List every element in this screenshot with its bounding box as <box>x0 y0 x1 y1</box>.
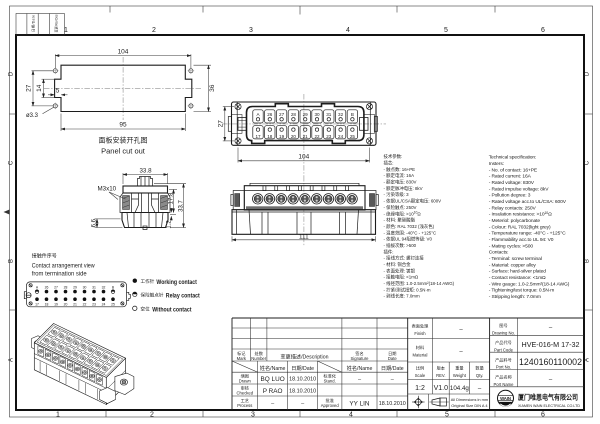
svg-text:Part Code: Part Code <box>494 347 514 352</box>
svg-text:2: 2 <box>150 412 154 419</box>
svg-text:32: 32 <box>102 285 106 289</box>
svg-text:- Insulation resistance: >101: - Insulation resistance: >1010Ω <box>489 211 552 218</box>
svg-text:1.2: 1.2 <box>167 220 173 229</box>
svg-text:Contacts:: Contacts: <box>489 250 509 256</box>
svg-text:23: 23 <box>326 134 332 139</box>
svg-text:20: 20 <box>291 134 297 139</box>
svg-text:6: 6 <box>541 412 545 419</box>
svg-text:- 污染等级: 3: - 污染等级: 3 <box>384 191 410 198</box>
svg-text:6.6: 6.6 <box>92 218 98 227</box>
svg-text:- Rated current: 16A: - Rated current: 16A <box>489 174 532 180</box>
svg-text:1:2: 1:2 <box>415 385 425 392</box>
svg-text:插芯:: 插芯: <box>384 160 394 167</box>
svg-text:日期/Date: 日期/Date <box>291 365 314 372</box>
svg-text:Drawn: Drawn <box>239 379 252 384</box>
svg-text:姓名/Name: 姓名/Name <box>260 364 286 372</box>
svg-text:4: 4 <box>349 412 353 419</box>
svg-text:BQ LUO: BQ LUO <box>261 376 285 383</box>
svg-text:18.10.2010: 18.10.2010 <box>379 401 406 407</box>
svg-text:- Contact resistance: <1mΩ: - Contact resistance: <1mΩ <box>489 275 546 281</box>
svg-text:29: 29 <box>303 112 309 117</box>
svg-text:- Flammability acc.to UL 94:: - Flammability acc.to UL 94: V0 <box>489 237 554 243</box>
svg-text:22: 22 <box>83 302 87 306</box>
svg-text:版本: 版本 <box>437 365 446 372</box>
svg-text:- 拧紧/测试扭矩: 0.5N·m: - 拧紧/测试扭矩: 0.5N·m <box>384 286 431 293</box>
svg-text:33.7: 33.7 <box>179 200 185 212</box>
svg-text:Panel cut out: Panel cut out <box>101 147 146 156</box>
svg-text:D: D <box>585 71 591 76</box>
svg-text:Insters:: Insters: <box>489 161 504 167</box>
svg-text:- 额定电压: 830V: - 额定电压: 830V <box>384 179 417 186</box>
svg-text:日期/Date: 日期/Date <box>381 365 404 372</box>
svg-text:WAIN: WAIN <box>500 396 511 401</box>
svg-text:1: 1 <box>64 27 68 34</box>
svg-text:日期/Date: 日期/Date <box>31 15 36 32</box>
svg-text:- 保险触点: 250V: - 保险触点: 250V <box>384 204 417 211</box>
svg-text:B: B <box>9 259 15 263</box>
svg-text:Mark: Mark <box>237 356 247 361</box>
svg-text:- 线径范围: 1.0-2.5mm²(18-14 AWG): - 线径范围: 1.0-2.5mm²(18-14 AWG) <box>384 280 455 287</box>
svg-text:ø3.3: ø3.3 <box>26 113 39 119</box>
svg-text:技术参数:: 技术参数: <box>384 153 403 160</box>
svg-text:Material: Material <box>413 353 428 358</box>
svg-text:Without contact: Without contact <box>152 307 191 314</box>
svg-text:REV.: REV. <box>436 373 445 378</box>
svg-text:Date: Date <box>388 356 398 361</box>
svg-text:5: 5 <box>444 27 448 34</box>
svg-text:- Surface: hard-silver plated: - Surface: hard-silver plated <box>489 269 547 275</box>
svg-text:28: 28 <box>64 285 68 289</box>
svg-text:Port Name: Port Name <box>493 382 514 387</box>
svg-text:Checked: Checked <box>237 391 254 396</box>
svg-text:Number: Number <box>251 356 266 361</box>
svg-text:比例: 比例 <box>416 365 424 372</box>
svg-text:32: 32 <box>338 112 344 117</box>
svg-text:C: C <box>9 160 15 165</box>
svg-text:3: 3 <box>249 27 253 34</box>
svg-text:19: 19 <box>54 302 58 306</box>
svg-text:30: 30 <box>83 285 87 289</box>
svg-text:- 材料: 聚碳酸酯: - 材料: 聚碳酸酯 <box>384 217 416 224</box>
svg-text:- Rated impulse voltage: 8kV: - Rated impulse voltage: 8kV <box>489 186 550 192</box>
svg-text:- 剥线长度: 7.0mm: - 剥线长度: 7.0mm <box>384 293 420 300</box>
svg-text:Qty.: Qty. <box>476 373 483 378</box>
svg-text:17.8: 17.8 <box>169 192 175 204</box>
svg-text:- 依据UL/CSA额定电压: 600V: - 依据UL/CSA额定电压: 600V <box>384 198 442 205</box>
svg-text:Process: Process <box>237 403 252 408</box>
svg-text:3: 3 <box>251 412 255 419</box>
svg-text:Drawing No.: Drawing No. <box>492 330 515 335</box>
svg-text:- Stripping length: 7.0mm: - Stripping length: 7.0mm <box>489 294 541 300</box>
svg-text:19: 19 <box>279 134 285 139</box>
svg-text:Technical specification:: Technical specification: <box>489 155 537 161</box>
svg-text:变更 Rev Des: 变更 Rev Des <box>54 14 59 32</box>
svg-text:产品名称: 产品名称 <box>495 374 512 381</box>
svg-text:A: A <box>585 358 591 362</box>
svg-text:21: 21 <box>303 134 309 139</box>
svg-text:插件:: 插件: <box>384 248 394 255</box>
svg-text:- 接线方式: 螺钉连接: - 接线方式: 螺钉连接 <box>384 255 425 262</box>
svg-text:All Dimensions in mm: All Dimensions in mm <box>451 397 488 402</box>
svg-text:空位: 空位 <box>141 306 151 312</box>
svg-text:HVE-016-M 17-32: HVE-016-M 17-32 <box>522 340 580 349</box>
svg-text:姓名/Name: 姓名/Name <box>347 364 373 372</box>
svg-text:- Material: copper alloy: - Material: copper alloy <box>489 262 537 268</box>
svg-text:- Mating cycles: >500: - Mating cycles: >500 <box>489 243 534 249</box>
svg-text:- Terminal: screw terminal: - Terminal: screw terminal <box>489 256 542 262</box>
svg-text:数量: 数量 <box>475 365 483 372</box>
svg-text:接触件序号: 接触件序号 <box>32 253 57 260</box>
svg-text:21: 21 <box>73 302 77 306</box>
svg-text:B: B <box>351 112 354 117</box>
svg-text:18: 18 <box>45 302 49 306</box>
svg-text:Stand.: Stand. <box>324 379 336 384</box>
svg-text:31: 31 <box>326 112 332 117</box>
svg-text:104.4g: 104.4g <box>450 385 469 392</box>
svg-text:25: 25 <box>350 134 356 139</box>
svg-text:Approved: Approved <box>321 403 340 408</box>
svg-text:- 接触电阻: <1mΩ: - 接触电阻: <1mΩ <box>384 274 419 281</box>
svg-text:- Relay contacts: 250V: - Relay contacts: 250V <box>489 205 537 211</box>
svg-text:Finish: Finish <box>414 331 426 336</box>
svg-text:33.8: 33.8 <box>139 168 152 175</box>
svg-text:厦门唯恩电气有限公司: 厦门唯恩电气有限公司 <box>517 393 578 402</box>
svg-text:- 额定电流: 16A: - 额定电流: 16A <box>384 172 415 179</box>
svg-text:- 材料: 铜合金: - 材料: 铜合金 <box>384 261 412 268</box>
svg-text:- 依据UL 94阻燃等级: V0: - 依据UL 94阻燃等级: V0 <box>384 236 433 243</box>
svg-text:- 触点数: 16+PE: - 触点数: 16+PE <box>384 166 416 173</box>
svg-text:31: 31 <box>92 285 96 289</box>
svg-text:B: B <box>585 259 591 263</box>
svg-text:95: 95 <box>119 122 127 129</box>
svg-text:A: A <box>9 358 15 362</box>
svg-text:20: 20 <box>64 302 68 306</box>
svg-text:- 表面处理: 镀银: - 表面处理: 镀银 <box>384 267 416 274</box>
svg-text:变更描述/Description: 变更描述/Description <box>280 353 328 361</box>
svg-text:材料: 材料 <box>416 344 425 351</box>
svg-text:27: 27 <box>279 112 285 117</box>
svg-text:- Temperature range: -40°C -: - Temperature range: -40°C - +125°C <box>489 231 566 237</box>
svg-text:25: 25 <box>111 302 115 306</box>
svg-text:Original Size DIN A 4: Original Size DIN A 4 <box>451 403 488 408</box>
svg-text:from termination side: from termination side <box>32 271 87 278</box>
svg-text:V1.0: V1.0 <box>434 385 449 392</box>
svg-text:5: 5 <box>445 412 449 419</box>
svg-text:29: 29 <box>73 285 77 289</box>
svg-text:Contact arrangement view: Contact arrangement view <box>32 263 95 270</box>
svg-text:保险触点针: 保险触点针 <box>141 292 164 299</box>
svg-text:Relay contact: Relay contact <box>166 293 200 300</box>
svg-text:- Wire gauge: 1.0-2.5mm²(18-1: - Wire gauge: 1.0-2.5mm²(18-14 AWG) <box>489 281 570 287</box>
svg-text:- Pollution degree: 3: - Pollution degree: 3 <box>489 193 531 199</box>
svg-text:- Rated voltage acc.to UL/CSA: - Rated voltage acc.to UL/CSA: 600V <box>489 199 567 205</box>
svg-text:M3x10: M3x10 <box>98 186 117 193</box>
svg-text:27: 27 <box>217 120 224 128</box>
svg-text:XIAMEN WAIN ELECTRICAL CO.LTD: XIAMEN WAIN ELECTRICAL CO.LTD <box>518 403 580 408</box>
svg-text:27: 27 <box>54 285 58 289</box>
svg-text:17: 17 <box>35 302 39 306</box>
svg-text:18.10.2010: 18.10.2010 <box>289 376 316 382</box>
svg-text:28: 28 <box>291 112 297 117</box>
svg-text:- 额定脉冲电压: 8kV: - 额定脉冲电压: 8kV <box>384 185 423 192</box>
svg-text:2: 2 <box>152 27 156 34</box>
svg-text:14: 14 <box>36 84 43 92</box>
svg-text:18: 18 <box>267 134 273 139</box>
svg-text:27: 27 <box>26 84 33 92</box>
svg-text:111: 111 <box>299 234 309 241</box>
svg-text:24: 24 <box>338 134 344 139</box>
svg-text:- 温度范围: -40°C - +125°C: - 温度范围: -40°C - +125°C <box>384 229 437 236</box>
svg-text:- Colour: RAL 7032(light grey: - Colour: RAL 7032(light grey) <box>489 224 551 230</box>
svg-text:Working contact: Working contact <box>156 279 197 286</box>
svg-text:- 颜色: RAL 7032 (浅灰色): - 颜色: RAL 7032 (浅灰色) <box>384 223 435 230</box>
svg-text:4: 4 <box>346 27 350 34</box>
svg-text:23: 23 <box>92 302 96 306</box>
svg-text:26: 26 <box>45 285 49 289</box>
svg-text:表面处理: 表面处理 <box>412 323 430 330</box>
svg-text:36: 36 <box>209 84 216 92</box>
svg-text:30: 30 <box>314 112 320 117</box>
svg-text:Signature: Signature <box>351 356 370 361</box>
svg-text:104: 104 <box>298 154 309 161</box>
svg-text:C: C <box>585 160 591 165</box>
svg-text:Port No.: Port No. <box>496 365 511 370</box>
svg-text:Scale: Scale <box>415 373 426 378</box>
svg-text:22: 22 <box>314 134 320 139</box>
svg-text:产品代号: 产品代号 <box>495 339 512 346</box>
svg-text:- Rated voltage: 830V: - Rated voltage: 830V <box>489 180 535 186</box>
svg-text:- 插拔次数: >500: - 插拔次数: >500 <box>384 242 417 249</box>
svg-text:6: 6 <box>541 27 545 34</box>
svg-text:D: D <box>9 71 15 76</box>
svg-text:5: 5 <box>56 88 60 95</box>
svg-text:产品料号: 产品料号 <box>495 356 512 363</box>
svg-text:- Meteriol: polycarbonate: - Meteriol: polycarbonate <box>489 218 541 224</box>
svg-text:26: 26 <box>267 112 273 117</box>
svg-text:重量: 重量 <box>455 365 463 372</box>
svg-text:1240160110002: 1240160110002 <box>519 357 582 367</box>
svg-text:面板安装开孔图: 面板安装开孔图 <box>99 136 148 145</box>
svg-text:- Tightening/test torque: 0.5: - Tightening/test torque: 0.5N·m <box>489 288 555 294</box>
svg-text:P RAO: P RAO <box>263 388 283 395</box>
svg-text:Weight: Weight <box>453 373 467 378</box>
svg-text:1: 1 <box>56 412 60 419</box>
svg-text:18.10.2010: 18.10.2010 <box>289 388 316 394</box>
svg-text:104: 104 <box>118 49 129 56</box>
svg-text:YY LIN: YY LIN <box>349 400 370 407</box>
svg-text:- No. of contact: 16+PE: - No. of contact: 16+PE <box>489 167 538 173</box>
svg-text:24: 24 <box>102 302 106 306</box>
svg-text:17: 17 <box>255 134 261 139</box>
svg-text:工作针: 工作针 <box>141 278 155 285</box>
